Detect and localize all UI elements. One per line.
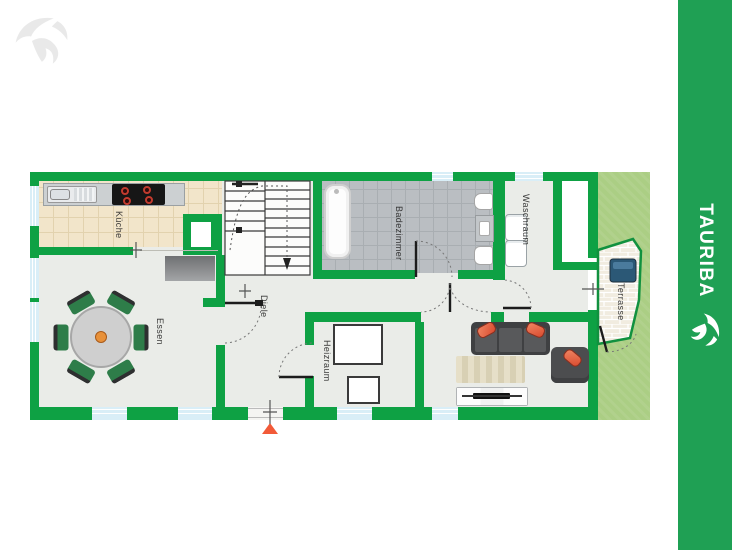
floorplan-page: Küche Essen Diele Heizraum Badezimmer Wa… xyxy=(0,0,732,550)
room-label-kueche: Küche xyxy=(114,211,124,239)
room-label-waschraum: Waschraum xyxy=(521,194,531,245)
room-label-heizraum: Heizraum xyxy=(322,340,332,382)
grill xyxy=(610,259,636,282)
brand-sidebar: TAURIBA xyxy=(678,0,732,550)
brand-lockup: TAURIBA xyxy=(687,203,723,347)
staircase xyxy=(225,181,310,275)
bull-logo-icon xyxy=(687,311,723,347)
room-label-terrasse: Terrasse xyxy=(616,283,626,321)
brand-name: TAURIBA xyxy=(694,203,716,298)
room-label-diele: Diele xyxy=(259,295,269,318)
opening-ticks xyxy=(130,242,604,424)
room-label-badezimmer: Badezimmer xyxy=(394,206,404,261)
room-label-essen: Essen xyxy=(155,318,165,345)
plan-linework xyxy=(0,0,732,550)
